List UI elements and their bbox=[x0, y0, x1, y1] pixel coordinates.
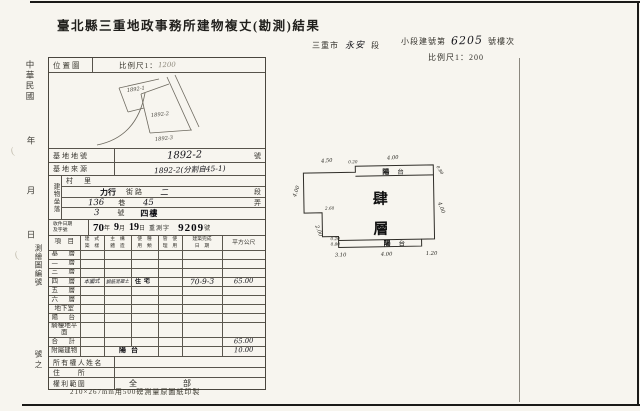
floor-row-5: 五 層 bbox=[49, 287, 265, 296]
owner-name-label: 所有權人姓名 bbox=[49, 357, 115, 367]
floor-row-1: 基 層 bbox=[49, 250, 265, 259]
cell bbox=[222, 287, 265, 296]
parcel-label-1892-1: 1892-1 bbox=[126, 85, 145, 93]
dim-bottom-right: 1.20 bbox=[426, 251, 438, 257]
cell bbox=[104, 250, 131, 259]
lane-value: 136 bbox=[88, 197, 105, 208]
row-label: 基 層 bbox=[49, 250, 80, 259]
total-row: 合 計 65.00 bbox=[49, 338, 265, 347]
location-map-scale-prefix: 比例尺1： bbox=[119, 60, 158, 71]
dim-top-left: 4.50 bbox=[320, 158, 334, 165]
scan-artifact: ( bbox=[10, 146, 16, 157]
cell-date: 70-9-3 bbox=[182, 277, 222, 287]
receipt-word: 重測字 bbox=[149, 223, 170, 232]
cell bbox=[131, 259, 158, 268]
header-section-line: 三重市 永安 段 bbox=[312, 38, 380, 51]
cell-manage bbox=[158, 277, 182, 287]
lot-source-label: 基地來源 bbox=[49, 163, 115, 175]
cell bbox=[222, 323, 265, 338]
building-situs-group: 建物坐落 村 里 力行 街路 二 段 136 巷 45 bbox=[49, 175, 265, 219]
margin-year-label: 年 bbox=[25, 136, 37, 148]
header-area: 平方公尺 bbox=[222, 236, 265, 250]
floor-row-6: 六 層 bbox=[49, 296, 265, 305]
dim-right-top: 0.80 bbox=[435, 165, 444, 176]
street-name-value: 力行 bbox=[100, 186, 116, 198]
cell bbox=[182, 287, 222, 296]
structure-value: 鋼筋混凝土 bbox=[106, 280, 129, 286]
cell bbox=[104, 287, 131, 296]
style-value: 本國式 bbox=[84, 279, 100, 285]
cell bbox=[182, 250, 222, 259]
receipt-year-unit: 年 bbox=[104, 223, 114, 232]
cell-total-area: 65.00 bbox=[222, 338, 265, 347]
row-label: 四 層 bbox=[49, 277, 80, 287]
cell bbox=[104, 268, 131, 277]
lot-source-value: 1892-2(分割自45-1) bbox=[154, 162, 226, 175]
street-section-value: 二 bbox=[160, 186, 168, 197]
floor-plan-drawing: 肆 層 陽 台 陽 台 4.50 0.20 4.00 0.80 4.00 1.2… bbox=[288, 148, 450, 270]
row-label: 三 層 bbox=[49, 268, 80, 277]
road-arc bbox=[97, 93, 145, 145]
alley-label: 弄 bbox=[254, 198, 265, 208]
building-floor-plan: 肆 層 陽 台 陽 台 4.50 0.20 4.00 0.80 4.00 1.2… bbox=[288, 148, 450, 275]
lot-number-unit: 號 bbox=[254, 151, 265, 161]
header-item: 項 目 bbox=[49, 236, 80, 250]
parcel-line bbox=[128, 108, 144, 112]
owner-name-row: 所有權人姓名 bbox=[49, 356, 265, 367]
cell-structure: 鋼筋混凝土 bbox=[104, 277, 131, 287]
bottom-balcony-label-2: 台 bbox=[399, 238, 406, 247]
dim-bottom-balcony: 4.00 bbox=[380, 252, 393, 258]
cell bbox=[222, 259, 265, 268]
row-label: 五 層 bbox=[49, 287, 80, 296]
lot-number-value: 1892-2 bbox=[167, 149, 203, 161]
cell bbox=[131, 287, 158, 296]
lot-number-row: 基地地號 1892-2 號 bbox=[49, 148, 265, 162]
road-boundary-line bbox=[167, 77, 191, 130]
parcel-line bbox=[150, 130, 192, 133]
cell bbox=[222, 250, 265, 259]
cell bbox=[158, 314, 182, 323]
floor-character-1: 肆 bbox=[373, 191, 388, 208]
building-no-suffix: 號樓次 bbox=[488, 37, 515, 46]
street-label: 街路 bbox=[126, 187, 144, 197]
header-style: 建 式築 樣 bbox=[80, 236, 104, 250]
receipt-month-unit: 月 bbox=[119, 223, 129, 232]
row-label: 合 計 bbox=[49, 338, 80, 347]
dim-top-balcony: 4.00 bbox=[386, 155, 400, 162]
street-section-label: 段 bbox=[254, 187, 265, 197]
header-use-line1: 使 種 bbox=[137, 237, 151, 242]
cell bbox=[80, 314, 104, 323]
dim-left-upper: 4.00 bbox=[292, 184, 302, 198]
cell bbox=[158, 305, 182, 314]
cell-use: 住宅 bbox=[131, 277, 158, 287]
page-fold-line bbox=[519, 58, 520, 402]
cell bbox=[80, 287, 104, 296]
street-row: 力行 街路 二 段 bbox=[62, 186, 265, 197]
margin-day-label: 日 bbox=[25, 230, 37, 242]
cell bbox=[104, 296, 131, 305]
cell bbox=[131, 250, 158, 259]
cell bbox=[182, 305, 222, 314]
dim-bottom-step-a: 0.20 bbox=[330, 236, 340, 241]
floor-table: 項 目 建 式築 樣 主 構體 造 使 種用 類 管 使理 用 建築完成日 期 … bbox=[49, 236, 265, 356]
cell bbox=[131, 323, 158, 338]
building-no-prefix: 小段建號第 bbox=[401, 37, 446, 46]
row-label: 陽 台 bbox=[49, 314, 80, 323]
parcel-label-1892-2: 1892-2 bbox=[151, 111, 170, 119]
receipt-label-line2: 及字號 bbox=[53, 228, 67, 233]
cell bbox=[222, 314, 265, 323]
scan-edge-top bbox=[30, 1, 640, 3]
header-completion-date: 建築完成日 期 bbox=[182, 236, 222, 250]
location-map-header-row: 位置圖 比例尺1： 1200 bbox=[49, 58, 265, 72]
cell-annex-area: 10.00 bbox=[222, 347, 265, 356]
cell bbox=[104, 323, 131, 338]
cell bbox=[80, 259, 104, 268]
cell bbox=[182, 347, 222, 356]
city-label: 三重市 bbox=[312, 41, 339, 50]
margin-era-label: 中華民國 bbox=[24, 60, 36, 102]
header-structure-line2: 體 造 bbox=[110, 244, 124, 249]
area-value: 65.00 bbox=[234, 278, 254, 286]
receipt-year: 70 bbox=[93, 222, 104, 234]
header-structure: 主 構體 造 bbox=[104, 236, 131, 250]
header-use-line2: 用 類 bbox=[137, 244, 151, 249]
row-label: 附屬建物 bbox=[49, 347, 80, 356]
total-area-value: 65.00 bbox=[234, 338, 254, 346]
parcel-line bbox=[144, 108, 150, 133]
annex-area-value: 10.00 bbox=[234, 347, 254, 355]
bottom-balcony-label-1: 陽 bbox=[384, 239, 391, 248]
village-label: 村 里 bbox=[62, 176, 93, 186]
survey-form: 位置圖 比例尺1： 1200 1892-1 1892-2 1892-3 bbox=[48, 57, 266, 390]
address-label: 住 所 bbox=[49, 368, 115, 377]
cell bbox=[158, 268, 182, 277]
door-number-label: 號 bbox=[117, 208, 126, 218]
section-name-handwritten: 永安 bbox=[345, 38, 365, 52]
receipt-number-unit: 號 bbox=[204, 223, 214, 232]
cell bbox=[158, 250, 182, 259]
location-map-drawing: 1892-1 1892-2 1892-3 bbox=[49, 73, 265, 149]
floor-value: 四樓 bbox=[140, 208, 158, 219]
cell bbox=[80, 338, 104, 347]
cell bbox=[131, 314, 158, 323]
lane-row: 136 巷 45 弄 bbox=[62, 197, 265, 207]
cell-area: 65.00 bbox=[222, 277, 265, 287]
cell bbox=[131, 338, 158, 347]
cell bbox=[131, 296, 158, 305]
cell bbox=[80, 347, 104, 356]
dim-right: 4.00 bbox=[436, 200, 446, 215]
cell bbox=[182, 296, 222, 305]
receipt-day-unit: 日 bbox=[139, 223, 149, 232]
floor-row-balcony: 陽 台 bbox=[49, 314, 265, 323]
address-row: 住 所 bbox=[49, 367, 265, 377]
cell bbox=[158, 323, 182, 338]
dim-left-step: 2.60 bbox=[324, 206, 335, 211]
scan-artifact: ( bbox=[14, 250, 20, 261]
header-style-line1: 建 式 bbox=[85, 237, 99, 242]
cell bbox=[104, 314, 131, 323]
floor-plan-outline bbox=[303, 165, 434, 248]
header-manage-line2: 理 用 bbox=[163, 244, 177, 249]
parcel-label-1892-3: 1892-3 bbox=[155, 135, 174, 143]
cell-annex-type: 陽台 bbox=[104, 347, 158, 356]
cell bbox=[182, 323, 222, 338]
cell bbox=[80, 305, 104, 314]
cell bbox=[80, 268, 104, 277]
cell bbox=[158, 259, 182, 268]
floor-character-2: 層 bbox=[373, 221, 388, 238]
floor-row-2: 二 層 bbox=[49, 259, 265, 268]
receipt-day: 19 bbox=[129, 222, 139, 233]
village-row: 村 里 bbox=[62, 176, 265, 186]
receipt-number: 9209 bbox=[178, 222, 204, 234]
lane-label: 巷 bbox=[118, 198, 127, 208]
cell bbox=[222, 268, 265, 277]
bottom-balcony-divider bbox=[339, 239, 422, 240]
cell bbox=[158, 287, 182, 296]
section-unit-label: 段 bbox=[371, 41, 380, 50]
cell bbox=[222, 296, 265, 305]
header-date-line2: 日 期 bbox=[195, 244, 209, 249]
cell bbox=[182, 338, 222, 347]
parcel-line bbox=[141, 84, 169, 94]
scan-edge-bottom bbox=[22, 404, 640, 406]
cell bbox=[222, 305, 265, 314]
header-structure-line1: 主 構 bbox=[110, 237, 124, 242]
cell bbox=[182, 268, 222, 277]
paper-spec-footnote: 210×267mm用500磅測量原圖紙印製 bbox=[70, 387, 200, 397]
lot-source-row: 基地來源 1892-2(分割自45-1) bbox=[49, 162, 265, 175]
header-style-line2: 築 樣 bbox=[85, 244, 99, 249]
cell-style: 本國式 bbox=[80, 277, 104, 287]
floor-table-header-row: 項 目 建 式築 樣 主 構體 造 使 種用 類 管 使理 用 建築完成日 期 … bbox=[49, 236, 265, 250]
row-label: 二 層 bbox=[49, 259, 80, 268]
door-number-row: 3 號 四樓 bbox=[62, 207, 265, 218]
lot-number-label: 基地地號 bbox=[49, 149, 115, 162]
date-value: 70-9-3 bbox=[190, 277, 214, 286]
header-building-number-line: 小段建號第 6205 號樓次 bbox=[401, 34, 515, 47]
door-number-value: 3 bbox=[94, 208, 100, 218]
receipt-label: 收件日期 及字號 bbox=[49, 220, 89, 235]
dim-bottom-left: 3.10 bbox=[335, 252, 347, 258]
cell bbox=[158, 296, 182, 305]
top-balcony-label-1: 陽 bbox=[382, 167, 389, 176]
margin-map-number-label: 測繪圖編號 bbox=[33, 244, 44, 287]
top-balcony-label-2: 台 bbox=[397, 167, 404, 176]
location-map-sketch: 1892-1 1892-2 1892-3 bbox=[49, 72, 265, 148]
location-map-scale-handwritten: 1200 bbox=[158, 61, 176, 70]
top-balcony-divider bbox=[355, 175, 433, 176]
cell bbox=[131, 268, 158, 277]
cell bbox=[104, 305, 131, 314]
margin-number-suffix: 號之 bbox=[33, 350, 44, 371]
floor-row-4: 四 層 本國式 鋼筋混凝土 住宅 70-9-3 65.00 bbox=[49, 277, 265, 287]
floor-row-basement: 地下室 bbox=[49, 305, 265, 314]
cell bbox=[104, 259, 131, 268]
row-label: 地下室 bbox=[49, 305, 80, 314]
annex-row: 附屬建物 陽台 10.00 bbox=[49, 347, 265, 356]
dim-top-step: 0.20 bbox=[348, 159, 358, 164]
cell bbox=[80, 250, 104, 259]
alley-value: 45 bbox=[143, 197, 154, 207]
row-label: 騎樓地平面 bbox=[49, 323, 80, 338]
cell bbox=[182, 259, 222, 268]
cell bbox=[104, 338, 131, 347]
cell bbox=[158, 338, 182, 347]
floor-table-band: 項 目 建 式築 樣 主 構體 造 使 種用 類 管 使理 用 建築完成日 期 … bbox=[49, 235, 265, 356]
annex-type-value: 陽台 bbox=[119, 347, 143, 355]
cell bbox=[80, 323, 104, 338]
use-value: 住宅 bbox=[135, 278, 153, 285]
cell bbox=[182, 314, 222, 323]
dim-bottom-step-b: 0.80 bbox=[331, 241, 341, 246]
header-manage: 管 使理 用 bbox=[158, 236, 182, 250]
cell bbox=[80, 296, 104, 305]
header-date-line1: 建築完成 bbox=[192, 237, 211, 242]
floor-row-3: 三 層 bbox=[49, 268, 265, 277]
header-scale: 比例尺1：200 bbox=[428, 52, 484, 63]
building-situs-label: 建物坐落 bbox=[49, 176, 62, 219]
cell bbox=[158, 347, 182, 356]
header-use: 使 種用 類 bbox=[131, 236, 158, 250]
document-title: 臺北縣三重地政事務所建物複丈(勘測)結果 bbox=[57, 15, 320, 34]
location-map-label: 位置圖 bbox=[49, 58, 93, 72]
row-label: 六 層 bbox=[49, 296, 80, 305]
scanned-survey-document: ( ( 中華民國 年 月 日 測繪圖編號 號之 臺北縣三重地政事務所建物複丈(勘… bbox=[0, 0, 640, 411]
scan-edge-right bbox=[637, 1, 639, 406]
building-no-handwritten: 6205 bbox=[451, 33, 483, 47]
cell bbox=[131, 305, 158, 314]
receipt-row: 收件日期 及字號 70 年 9 月 19 日 重測字 9209 號 bbox=[49, 219, 265, 235]
margin-month-label: 月 bbox=[25, 186, 37, 198]
floor-row-arcade: 騎樓地平面 bbox=[49, 323, 265, 338]
road-boundary-line bbox=[175, 75, 199, 127]
header-manage-line1: 管 使 bbox=[163, 237, 177, 242]
